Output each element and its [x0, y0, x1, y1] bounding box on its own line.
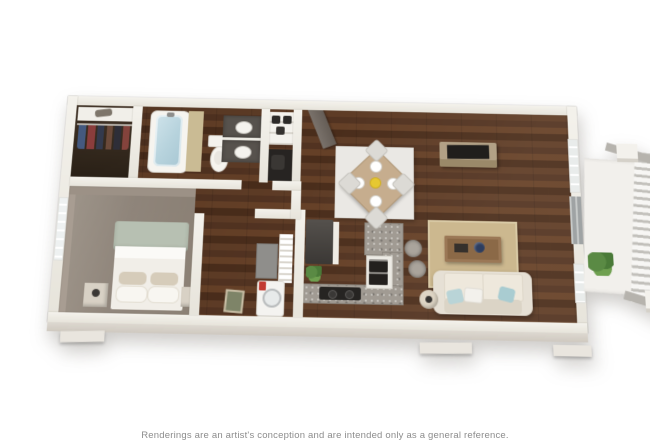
- burner: [328, 290, 337, 299]
- bed-pillow: [150, 272, 178, 285]
- balcony-post: [645, 291, 650, 313]
- bathtub-interior: [153, 115, 183, 167]
- bathtub-faucet: [167, 112, 175, 117]
- bar-stool: [408, 260, 426, 278]
- burner: [345, 290, 354, 299]
- picture-frame: [223, 289, 244, 314]
- shoe-pair: [276, 126, 285, 134]
- balcony-plant: [588, 252, 615, 276]
- table-lamp: [425, 296, 432, 303]
- floor-plan-rendering: [47, 96, 587, 333]
- balcony-post: [616, 144, 638, 163]
- shoe-pair: [272, 116, 281, 124]
- tv: [447, 145, 489, 159]
- refrigerator: [305, 219, 333, 264]
- wall-topband-bottom: [272, 181, 301, 191]
- table-centerpiece: [371, 178, 381, 188]
- wall-laundry-top: [255, 209, 296, 219]
- hanging-clothes: [77, 125, 130, 150]
- oven-door: [369, 272, 388, 285]
- kitchen-plant: [306, 266, 322, 282]
- laundry-cabinet: [255, 243, 278, 279]
- bar-stool: [404, 240, 422, 258]
- decor-bowl: [474, 242, 485, 253]
- throw-pillow: [446, 288, 465, 305]
- bed-sheet-fold: [114, 246, 185, 259]
- balcony: [578, 139, 650, 323]
- coffee-table: [444, 236, 501, 263]
- bed-pillow: [115, 285, 148, 303]
- tub-side-panel: [185, 111, 204, 172]
- balcony-railing: [631, 152, 650, 306]
- shoe-pair: [283, 116, 292, 124]
- decor-books: [454, 244, 468, 253]
- wall-foot: [420, 342, 473, 353]
- detergent-bottle: [259, 281, 266, 290]
- place-setting: [370, 160, 383, 172]
- bed-pillow: [147, 286, 180, 304]
- wall-entry-stub: [291, 191, 301, 220]
- oven-door: [369, 259, 388, 272]
- wall-foot: [553, 345, 592, 357]
- throw-pillow: [464, 287, 484, 304]
- storage-bag: [271, 155, 285, 170]
- wall-foot: [60, 331, 105, 343]
- laundry-shelving: [278, 234, 293, 283]
- cooktop: [319, 287, 361, 301]
- counter-strip: [333, 222, 340, 265]
- disclaimer-caption: Renderings are an artist's conception an…: [0, 430, 650, 441]
- bed-pillow: [118, 272, 147, 285]
